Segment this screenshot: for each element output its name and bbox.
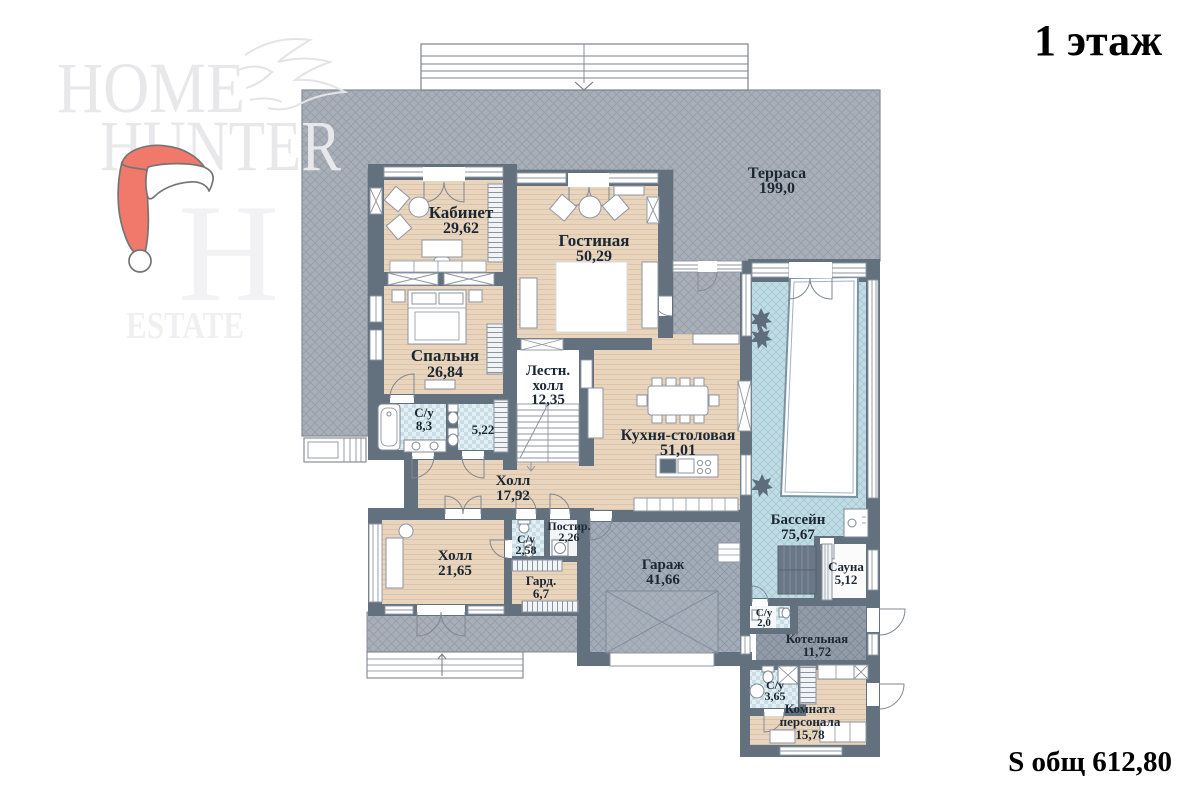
svg-text:ESTATE: ESTATE — [126, 305, 244, 347]
svg-text:12,35: 12,35 — [531, 392, 565, 408]
svg-text:51,01: 51,01 — [660, 442, 696, 459]
svg-text:Спальня: Спальня — [411, 346, 479, 365]
svg-text:2,26: 2,26 — [559, 530, 580, 544]
svg-text:S общ 612,80: S общ 612,80 — [1008, 746, 1172, 778]
svg-text:26,84: 26,84 — [427, 364, 463, 381]
svg-text:8,3: 8,3 — [416, 418, 433, 433]
svg-text:50,29: 50,29 — [576, 248, 612, 265]
svg-text:15,78: 15,78 — [795, 727, 825, 742]
svg-text:75,67: 75,67 — [781, 527, 815, 543]
svg-text:2,58: 2,58 — [516, 543, 537, 557]
svg-text:5,12: 5,12 — [835, 572, 858, 587]
svg-text:Гараж: Гараж — [642, 557, 685, 573]
svg-text:6,7: 6,7 — [533, 586, 550, 601]
svg-text:17,92: 17,92 — [496, 488, 530, 504]
svg-text:2,0: 2,0 — [757, 617, 771, 629]
svg-text:Бассейн: Бассейн — [771, 512, 826, 528]
svg-text:1 этаж: 1 этаж — [1034, 16, 1162, 65]
svg-text:29,62: 29,62 — [443, 220, 479, 237]
svg-text:199,0: 199,0 — [759, 180, 795, 197]
svg-text:Холл: Холл — [496, 473, 531, 489]
svg-text:41,66: 41,66 — [646, 572, 680, 588]
svg-text:21,65: 21,65 — [438, 563, 472, 579]
svg-text:11,72: 11,72 — [803, 644, 832, 659]
svg-text:Лестн.: Лестн. — [526, 363, 571, 379]
svg-text:Холл: Холл — [438, 548, 473, 564]
svg-text:5,22: 5,22 — [472, 422, 495, 437]
svg-text:3,65: 3,65 — [765, 689, 786, 703]
